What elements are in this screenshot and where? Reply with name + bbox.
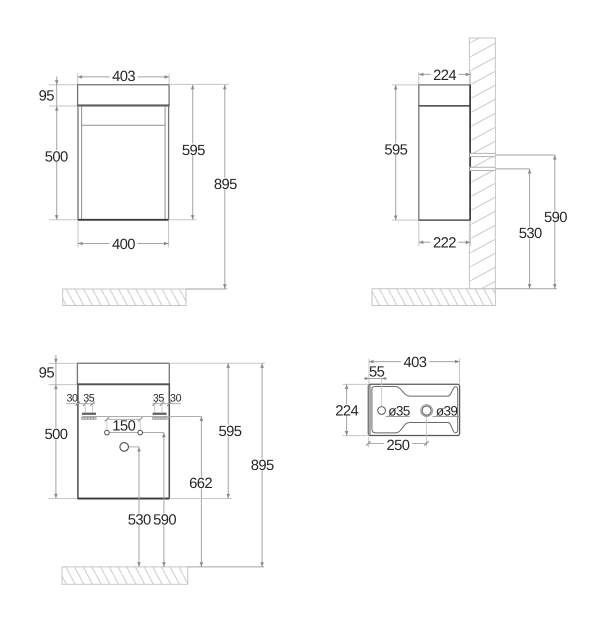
svg-text:895: 895 xyxy=(214,177,237,193)
svg-text:150: 150 xyxy=(112,418,135,434)
svg-text:224: 224 xyxy=(335,403,358,419)
svg-text:895: 895 xyxy=(251,458,274,474)
svg-text:95: 95 xyxy=(39,88,55,104)
svg-text:222: 222 xyxy=(433,236,456,252)
svg-text:500: 500 xyxy=(44,427,67,443)
svg-text:530: 530 xyxy=(519,226,542,242)
svg-text:250: 250 xyxy=(387,438,410,454)
svg-text:35: 35 xyxy=(153,392,165,404)
svg-text:595: 595 xyxy=(182,143,205,159)
svg-text:530: 530 xyxy=(128,513,151,529)
svg-text:595: 595 xyxy=(219,424,242,440)
svg-text:500: 500 xyxy=(45,149,68,165)
svg-text:55: 55 xyxy=(369,365,385,381)
svg-text:30: 30 xyxy=(170,392,182,404)
svg-text:590: 590 xyxy=(544,210,567,226)
svg-text:662: 662 xyxy=(189,476,212,492)
svg-text:95: 95 xyxy=(39,366,55,382)
svg-text:35: 35 xyxy=(83,392,95,404)
svg-text:224: 224 xyxy=(433,68,456,84)
svg-text:403: 403 xyxy=(403,355,426,371)
svg-text:403: 403 xyxy=(112,69,135,85)
svg-text:595: 595 xyxy=(384,143,407,159)
svg-text:400: 400 xyxy=(112,237,135,253)
svg-text:30: 30 xyxy=(66,392,78,404)
svg-text:590: 590 xyxy=(153,513,176,529)
